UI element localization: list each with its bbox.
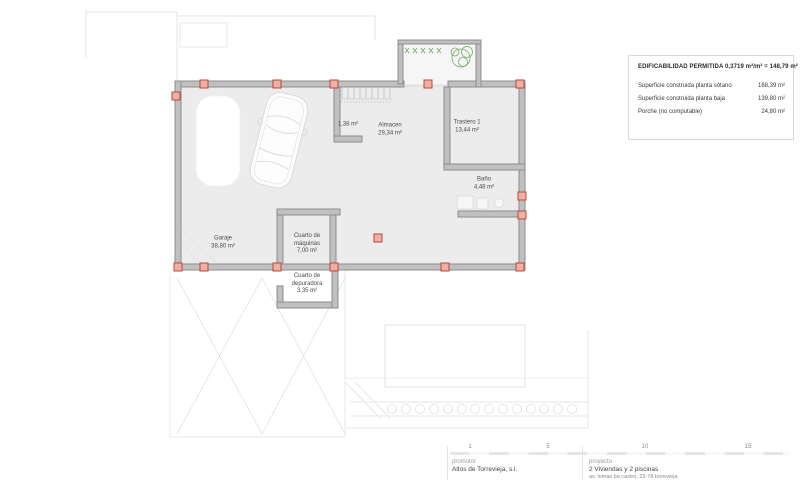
room-label-trastero: Trastero 1 13,44 m² bbox=[453, 120, 480, 135]
car-silhouette bbox=[196, 96, 240, 186]
proyecto-address: av. lomas ba castro, 23-78 torrevieja bbox=[589, 474, 678, 480]
column-marker bbox=[516, 263, 524, 271]
column-marker bbox=[273, 263, 281, 271]
titleblock-divider bbox=[447, 446, 448, 480]
column-marker bbox=[273, 80, 281, 88]
legend-row-sotano: Superficie construida planta sótano 168,… bbox=[638, 83, 785, 89]
room-name: Garaje bbox=[211, 236, 235, 244]
terrace-lines bbox=[345, 325, 588, 428]
proyecto-label: proyecto bbox=[589, 459, 678, 465]
legend-row-porche: Porche (no computable) 24,80 m² bbox=[638, 109, 785, 115]
scale-tick-label: 1 bbox=[468, 444, 471, 450]
column-marker bbox=[330, 80, 338, 88]
room-area: 29,34 m² bbox=[378, 130, 402, 138]
terrace-circles bbox=[387, 404, 576, 413]
legend-title: EDIFICABILIDAD PERMITIDA 0,3719 m²/m² = … bbox=[638, 64, 785, 70]
titleblock-divider bbox=[582, 446, 583, 480]
room-area: 1,38 m² bbox=[338, 121, 358, 129]
room-area: 7,00 m² bbox=[287, 248, 327, 256]
legend-label: Superficie construida planta baja bbox=[638, 96, 725, 102]
promotor-label: promotor bbox=[452, 459, 517, 465]
room-label-maquinas: Cuarto de máquinas 7,00 m² bbox=[287, 233, 327, 256]
room-area: 4,48 m² bbox=[474, 184, 494, 192]
promotor-block: promotor Altos de Torrevieja, s.l. bbox=[452, 459, 517, 473]
column-marker bbox=[174, 263, 182, 271]
column-marker bbox=[441, 263, 449, 271]
column-marker bbox=[518, 192, 526, 200]
plan-sheet: Garaje 38,80 m² 1,38 m² Almacen 29,34 m²… bbox=[0, 0, 800, 480]
column-marker bbox=[200, 80, 208, 88]
room-area: 13,44 m² bbox=[453, 127, 480, 135]
buildability-legend: EDIFICABILIDAD PERMITIDA 0,3719 m²/m² = … bbox=[628, 55, 794, 140]
proyecto-value: 2 Viviendas y 2 piscinas bbox=[589, 466, 678, 473]
promotor-value: Altos de Torrevieja, s.l. bbox=[452, 466, 517, 473]
column-marker bbox=[330, 263, 338, 271]
room-name: Cuarto de máquinas bbox=[287, 233, 327, 248]
room-name: Almacen bbox=[378, 123, 402, 131]
room-area: 38,80 m² bbox=[211, 243, 235, 251]
scale-tick-label: 5 bbox=[546, 444, 549, 450]
site-boundary-lines bbox=[86, 10, 375, 81]
legend-label: Porche (no computable) bbox=[638, 109, 702, 115]
column-marker bbox=[518, 211, 526, 219]
legend-label: Superficie construida planta sótano bbox=[638, 83, 732, 89]
column-marker bbox=[424, 80, 432, 88]
legend-value: 168,39 m² bbox=[758, 83, 785, 89]
graphic-scale-bar bbox=[450, 452, 790, 455]
room-name: Baño bbox=[474, 177, 494, 185]
room-name: Cuarto de depuradora bbox=[284, 273, 330, 288]
room-label-depuradora: Cuarto de depuradora 3,35 m² bbox=[284, 273, 330, 296]
legend-value: 139,80 m² bbox=[758, 96, 785, 102]
room-label-garaje: Garaje 38,80 m² bbox=[211, 236, 235, 251]
room-label-closet: 1,38 m² bbox=[338, 121, 358, 129]
column-marker bbox=[374, 234, 382, 242]
proyecto-block: proyecto 2 Viviendas y 2 piscinas av. lo… bbox=[589, 459, 678, 480]
room-area: 3,35 m² bbox=[284, 288, 330, 296]
legend-row-baja: Superficie construida planta baja 139,80… bbox=[638, 96, 785, 102]
room-label-bano: Baño 4,48 m² bbox=[474, 177, 494, 192]
scale-tick-label: 10 bbox=[642, 444, 649, 450]
room-name: Trastero 1 bbox=[453, 120, 480, 128]
scale-tick-label: 15 bbox=[745, 444, 752, 450]
room-label-almacen: Almacen 29,34 m² bbox=[378, 123, 402, 138]
legend-value: 24,80 m² bbox=[761, 109, 785, 115]
column-marker bbox=[200, 263, 208, 271]
column-marker bbox=[516, 80, 524, 88]
column-marker bbox=[172, 92, 180, 100]
